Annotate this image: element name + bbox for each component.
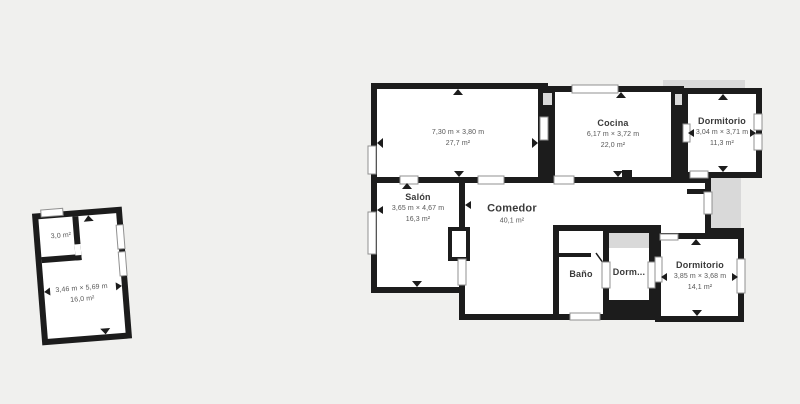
annex-storage-door — [75, 244, 82, 255]
wall-notch-right — [675, 94, 682, 105]
room-floor-salon — [377, 183, 459, 287]
window-living-right — [540, 117, 548, 140]
window-cocina-top — [572, 85, 618, 93]
main-building — [368, 80, 762, 322]
closet-floor — [452, 231, 466, 257]
window-living-left — [368, 146, 376, 174]
terrace-right — [711, 178, 741, 228]
wall-notch-left — [543, 93, 552, 105]
door-comedor-terrace — [704, 192, 712, 214]
opening-living-salon — [400, 176, 418, 184]
window-dormitorio-right — [737, 259, 745, 293]
room-floor-dormitorio-mid — [609, 248, 649, 300]
door-bano-side — [602, 262, 610, 288]
terrace-dormitorio-mid — [609, 233, 649, 248]
annex-building — [32, 204, 132, 346]
floorplan-canvas: 7,30 m × 3,80 m 27,7 m² Cocina 6,17 m × … — [0, 0, 800, 404]
annex-floor — [38, 213, 125, 339]
bano-partition-wall — [559, 253, 591, 257]
annex-window-right-1 — [116, 225, 125, 249]
room-floor-bano — [559, 231, 603, 314]
window-dormitorio-top-right-2 — [754, 134, 762, 150]
floorplan-drawing — [0, 0, 800, 404]
door-dormitorio-right-top — [660, 234, 678, 240]
room-floor-dormitorio-right — [661, 239, 738, 316]
window-comedor-bottom — [570, 313, 600, 320]
room-floor-living-large — [377, 89, 538, 177]
room-floor-dormitorio-top — [688, 94, 756, 172]
window-dormitorio-top-right-1 — [754, 114, 762, 130]
wall-stub-cocina — [622, 170, 632, 177]
door-dormitorio-right-left — [655, 257, 662, 282]
room-floor-cocina — [555, 92, 671, 177]
opening-cocina-comedor — [554, 176, 574, 184]
opening-living-comedor — [478, 176, 504, 184]
window-salon-left — [368, 212, 376, 254]
door-salon-comedor — [458, 259, 466, 285]
annex-window-top — [41, 208, 63, 217]
door-dormitorio-top-bottom — [690, 171, 708, 178]
annex-window-right-2 — [118, 252, 127, 276]
door-dormitorio-mid-right — [648, 262, 655, 288]
